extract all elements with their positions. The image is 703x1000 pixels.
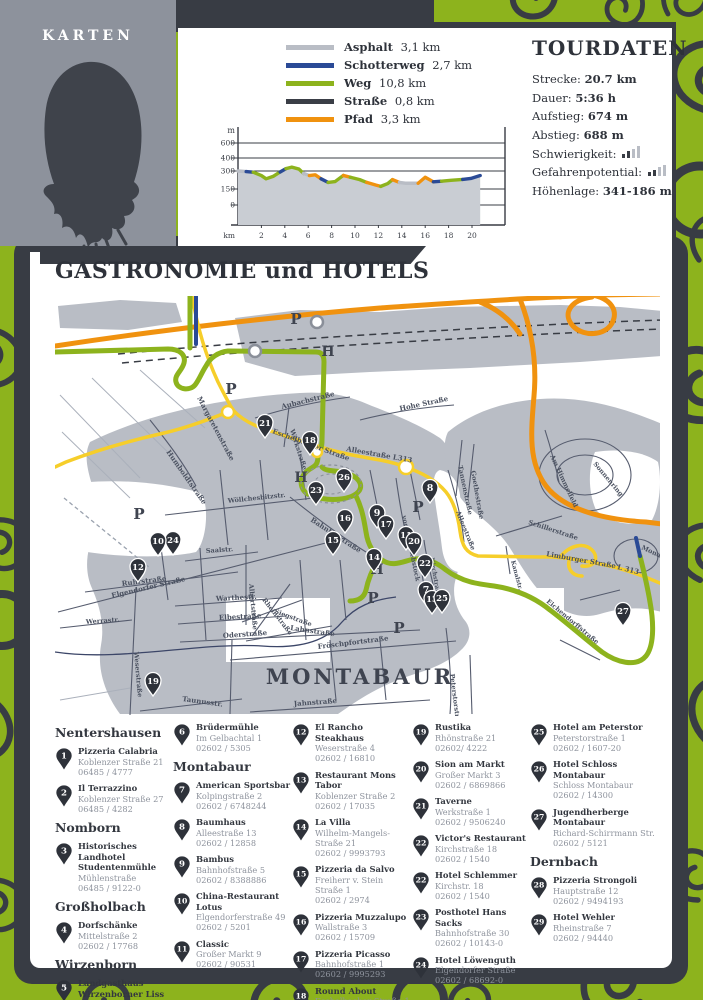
entry-detail: Richard-Schirrmann Str. [553,828,666,838]
entry-pin-icon: 9 [173,855,191,883]
directory-entry: 8BaumhausAlleestraße 1302602 / 12858 [173,817,291,848]
svg-text:15: 15 [296,870,307,879]
svg-text:22: 22 [416,839,427,848]
entry-detail: 02602 / 10143-0 [435,938,529,948]
page: KARTEN Asphalt 3,1 kmSchotterweg 2,7 kmW… [0,0,703,1000]
entry-name: Il Terrazzino [78,783,172,794]
parking-icon: P [367,589,378,607]
svg-text:18: 18 [304,436,316,446]
svg-text:400: 400 [221,154,236,163]
svg-text:21: 21 [259,419,271,429]
svg-text:29: 29 [534,918,545,927]
entry-detail: 02602 / 5201 [196,922,291,932]
svg-text:23: 23 [416,913,427,922]
entry-name: Pizzeria Strongoli [553,875,666,886]
parking-icon: P [290,310,301,328]
svg-text:m: m [227,126,235,135]
directory-section-header: Wirzenborn [55,957,172,972]
parking-icon: P [225,380,236,398]
entry-detail: 02602 / 9506240 [435,817,529,827]
entry-detail: Rhönstraße 21 [435,733,529,743]
entry-name: Hotel Schlemmer [435,870,529,881]
entry-pin-icon: 25 [530,723,548,751]
entry-pin-icon: 29 [530,913,548,941]
svg-text:23: 23 [310,486,322,496]
entry-detail: 02602 / 1540 [435,891,529,901]
tourdaten-row: Strecke: 20.7 km [532,70,670,89]
entry-name: Landgasthaus Wirzenborner Liss [78,978,172,999]
directory-entry: 7American SportsbarKolpingstraße 202602 … [173,780,291,811]
entry-name: Sion am Markt [435,759,529,770]
entry-detail: 06485 / 4777 [78,767,172,777]
entry-detail: Hauptstraße 12 [553,886,666,896]
svg-text:26: 26 [534,765,545,774]
entry-detail: Im Gelbachtal 1 [196,733,291,743]
svg-text:4: 4 [61,926,67,936]
elevation-profile-chart: 0150300400600m2468101214161820km [195,113,515,247]
directory-section-header: Nentershausen [55,725,172,740]
svg-text:300: 300 [221,167,236,176]
svg-text:14: 14 [397,231,407,240]
svg-text:12: 12 [296,728,307,737]
entry-detail: 02602/ 4222 [435,743,529,753]
entry-detail: 02602 / 5305 [196,743,291,753]
entry-name: Bambus [196,854,291,865]
directory-entry: 22Hotel SchlemmerKirchstr. 1802602 / 154… [412,870,529,901]
svg-text:20: 20 [467,231,477,240]
directory-section-header: Montabaur [173,759,291,774]
directory-entry: 16Pizzeria MuzzalupoWallstraße 302602 / … [292,912,411,943]
directory-entry: 25Hotel am PeterstorPeterstorstraße 1026… [530,722,666,753]
directory-entry: 24Hotel LöwenguthElgendorfer Straße02602… [412,955,529,986]
entry-detail: 02602 / 90531 [196,959,291,969]
directory-entry: 15Pizzeria da SalvoFreiherr v. Stein Str… [292,864,411,905]
entry-detail: 02602 / 14300 [553,790,666,800]
directory-column: 12El Rancho SteakhausWeserstraße 402602 … [292,722,411,1000]
legend-swatch [286,99,334,104]
directory-entry: 11ClassicGroßer Markt 902602 / 90531 [173,939,291,970]
entry-name: La Villa [315,817,411,828]
svg-text:19: 19 [147,677,159,687]
directory-entry: 20Sion am MarktGroßer Markt 302602 / 686… [412,759,529,790]
directory-column: Nentershausen1Pizzeria CalabriaKoblenzer… [55,722,172,1000]
directory-entry: 17Pizzeria PicassoBahnhofstraße 102602 /… [292,949,411,980]
entry-pin-icon: 2 [55,784,73,812]
entry-pin-icon: 27 [530,808,548,836]
svg-text:1: 1 [61,752,67,762]
city-map: MargaretenstraßeAubachstraßeWerkstraßeHo… [55,296,660,716]
entry-detail: 02602 / 2974 [315,895,411,905]
entry-name: Historisches Landhotel Studentenmühle [78,841,172,873]
svg-text:21: 21 [416,802,427,811]
svg-text:150: 150 [221,185,236,194]
svg-text:16: 16 [296,917,307,926]
entry-pin-icon: 26 [530,760,548,788]
city-label: MONTABAUR [266,664,454,689]
directory-section-header: Nomborn [55,820,172,835]
entry-detail: Schloss Montabaur [553,780,666,790]
entry-detail: 02602 / 15709 [315,932,411,942]
directory-entry: 14La VillaWilhelm-Mangels-Straße 2102602… [292,817,411,858]
entry-detail: 02602 / 16810 [315,753,411,763]
svg-text:13: 13 [296,775,307,784]
svg-text:19: 19 [416,728,427,737]
section-title: GASTRONOMIE und HOTELS [55,258,429,284]
directory-entry: 4DorfschänkeMittelstraße 202602 / 17768 [55,920,172,951]
svg-text:12: 12 [132,563,144,573]
svg-text:11: 11 [177,944,188,953]
entry-pin-icon: 16 [292,913,310,941]
entry-detail: Mittelstraße 2 [78,931,172,941]
svg-text:15: 15 [327,536,339,546]
svg-text:4: 4 [282,231,287,240]
entry-pin-icon: 6 [173,723,191,751]
entry-pin-icon: 10 [173,892,191,920]
directory-entry: 22Victor's RestaurantKirchstraße 1802602… [412,833,529,864]
svg-text:600: 600 [221,139,236,148]
parking-icon: P [393,619,404,637]
directory-column: 6BrüdermühleIm Gelbachtal 102602 / 5305M… [173,722,291,1000]
svg-text:20: 20 [408,537,420,547]
parking-icon: P [412,498,423,516]
svg-text:8: 8 [427,483,434,494]
entry-detail: Koblenzer Straße 2 [315,791,411,801]
directory-entry: 21TaverneWerkstraße 102602 / 9506240 [412,796,529,827]
entry-detail: Eschelbacher Straße 1 [315,996,411,1000]
entry-detail: Peterstorstraße 1 [553,733,666,743]
svg-text:7: 7 [179,786,185,796]
legend-swatch [286,81,334,86]
svg-text:3: 3 [61,847,67,857]
entry-detail: Weserstraße 4 [315,743,411,753]
karten-title: KARTEN [0,28,176,44]
directory-entry: 19RustikaRhönstraße 2102602/ 4222 [412,722,529,753]
svg-text:20: 20 [416,765,427,774]
entry-pin-icon: 20 [412,760,430,788]
directory-entry: 27Jugendherberge MontabaurRichard-Schirr… [530,807,666,849]
directory-column: 19RustikaRhönstraße 2102602/ 422220Sion … [412,722,529,1000]
svg-text:22: 22 [419,559,431,569]
entry-detail: 02602 / 9993793 [315,848,411,858]
difficulty-bars-icon [622,145,642,164]
entry-detail: Elgendorfer Straße [435,965,529,975]
entry-pin-icon: 19 [412,723,430,751]
entry-detail: 02602 / 6748244 [196,801,291,811]
entry-detail: 02602 / 9494193 [553,896,666,906]
difficulty-bars-icon [648,163,668,182]
svg-text:0: 0 [230,201,235,210]
svg-text:12: 12 [374,231,384,240]
directory-entry: 6BrüdermühleIm Gelbachtal 102602 / 5305 [173,722,291,753]
tourdaten-panel: TOURDATEN Strecke: 20.7 kmDauer: 5:36 hA… [532,36,670,200]
entry-detail: Wallstraße 3 [315,922,411,932]
entry-pin-icon: 17 [292,950,310,978]
directory-entry: 2Il TerrazzinoKoblenzer Straße 2706485 /… [55,783,172,814]
entry-detail: Wilhelm-Mangels-Straße 21 [315,828,411,849]
entry-detail: Kirchstraße 18 [435,844,529,854]
entry-pin-icon: 23 [412,908,430,936]
svg-text:17: 17 [296,954,307,963]
entry-detail: Mühlenstraße [78,873,172,883]
svg-text:25: 25 [436,594,448,604]
entry-name: China-Restaurant Lotus [196,891,291,912]
entry-name: Pizzeria Calabria [78,746,172,757]
legend-swatch [286,45,334,50]
directory-entry: 29Hotel WehlerRheinstraße 702602 / 94440 [530,912,666,943]
hotel-icon: H [321,344,334,360]
entry-name: Hotel Wehler [553,912,666,923]
entry-pin-icon: 21 [412,797,430,825]
entry-name: Round About [315,986,411,997]
svg-text:18: 18 [444,231,454,240]
entry-name: Taverne [435,796,529,807]
entry-pin-icon: 4 [55,921,73,949]
entry-detail: 06485 / 9122-0 [78,883,172,893]
hotel-icon: H [294,470,307,486]
tourdaten-row: Höhenlage: 341-186 m [532,182,670,201]
svg-text:km: km [223,231,235,240]
entry-pin-icon: 15 [292,865,310,893]
entry-pin-icon: 18 [292,987,310,1000]
entry-detail: 02602 / 5121 [553,838,666,848]
directory-section-header: Dernbach [530,854,666,869]
entry-name: Pizzeria Picasso [315,949,411,960]
svg-text:2: 2 [259,231,264,240]
legend-swatch [286,63,334,68]
entry-detail: Elgendorferstraße 49 [196,912,291,922]
entry-pin-icon: 24 [412,956,430,984]
entry-name: Restaurant Mons Tabor [315,770,411,791]
svg-text:26: 26 [338,473,350,483]
entry-name: Victor's Restaurant [435,833,529,844]
entry-name: Jugendherberge Montabaur [553,807,666,828]
directory-entry: 10China-Restaurant LotusElgendorferstraß… [173,891,291,933]
svg-text:10: 10 [152,537,164,547]
entry-detail: Koblenzer Straße 27 [78,794,172,804]
entry-detail: Kolpingstraße 2 [196,791,291,801]
svg-text:27: 27 [534,812,545,821]
entry-pin-icon: 5 [55,979,73,1000]
entry-name: Dorfschänke [78,920,172,931]
directory-entry: 12El Rancho SteakhausWeserstraße 402602 … [292,722,411,764]
legend-item: Asphalt 3,1 km [286,38,516,56]
directory: Nentershausen1Pizzeria CalabriaKoblenzer… [55,722,667,1000]
entry-name: Rustika [435,722,529,733]
svg-text:14: 14 [296,823,307,832]
entry-detail: Bahnhofstraße 1 [315,959,411,969]
directory-section-header: Großholbach [55,899,172,914]
directory-entry: 23Posthotel Hans SacksBahnhofstraße 3002… [412,907,529,949]
svg-text:18: 18 [296,991,307,1000]
svg-text:2: 2 [61,789,67,799]
svg-text:28: 28 [534,881,545,890]
svg-text:27: 27 [617,607,629,617]
parking-icon: P [133,505,144,523]
svg-text:9: 9 [179,860,185,870]
entry-detail: Freiherr v. Stein Straße 1 [315,875,411,896]
svg-text:10: 10 [177,897,188,906]
entry-pin-icon: 12 [292,723,310,751]
entry-detail: 02602 / 6869866 [435,780,529,790]
entry-detail: 02602 / 17035 [315,801,411,811]
entry-name: Brüdermühle [196,722,291,733]
entry-pin-icon: 1 [55,747,73,775]
directory-column: 25Hotel am PeterstorPeterstorstraße 1026… [530,722,666,1000]
svg-text:24: 24 [416,960,427,969]
entry-pin-icon: 22 [412,834,430,862]
entry-detail: Kirchstr. 18 [435,881,529,891]
entry-detail: Bahnhofstraße 30 [435,928,529,938]
tourdaten-row: Abstieg: 688 m [532,126,670,145]
entry-name: El Rancho Steakhaus [315,722,411,743]
svg-text:8: 8 [329,231,334,240]
entry-name: Baumhaus [196,817,291,828]
entry-name: Hotel Löwenguth [435,955,529,966]
entry-pin-icon: 3 [55,842,73,870]
directory-entry: 5Landgasthaus Wirzenborner LissKapellens… [55,978,172,1000]
svg-text:16: 16 [420,231,430,240]
svg-text:16: 16 [339,514,351,524]
svg-text:17: 17 [380,520,392,530]
entry-detail: Werkstraße 1 [435,807,529,817]
directory-entry: 9BambusBahnhofstraße 502602 / 8388886 [173,854,291,885]
entry-detail: Alleestraße 13 [196,828,291,838]
svg-text:9: 9 [374,508,381,519]
entry-name: Hotel Schloss Montabaur [553,759,666,780]
entry-name: American Sportsbar [196,780,291,791]
entry-pin-icon: 7 [173,781,191,809]
entry-pin-icon: 28 [530,876,548,904]
svg-text:6: 6 [306,231,311,240]
entry-detail: Großer Markt 9 [196,949,291,959]
entry-name: Posthotel Hans Sacks [435,907,529,928]
entry-name: Hotel am Peterstor [553,722,666,733]
legend-item: Straße 0,8 km [286,92,516,110]
directory-entry: 26Hotel Schloss MontabaurSchloss Montaba… [530,759,666,801]
svg-text:10: 10 [350,231,360,240]
entry-name: Pizzeria da Salvo [315,864,411,875]
entry-detail: 06485 / 4282 [78,804,172,814]
entry-name: Classic [196,939,291,950]
svg-text:14: 14 [368,553,380,563]
entry-pin-icon: 11 [173,940,191,968]
svg-text:5: 5 [61,984,67,994]
svg-text:22: 22 [416,876,427,885]
entry-detail: 02602 / 1607-20 [553,743,666,753]
svg-text:25: 25 [534,728,545,737]
tourdaten-row: Aufstieg: 674 m [532,107,670,126]
directory-entry: 13Restaurant Mons TaborKoblenzer Straße … [292,770,411,812]
legend-item: Schotterweg 2,7 km [286,56,516,74]
svg-text:24: 24 [167,536,179,546]
entry-pin-icon: 22 [412,871,430,899]
tourdaten-row: Dauer: 5:36 h [532,89,670,108]
entry-detail: Koblenzer Straße 21 [78,757,172,767]
directory-entry: 3Historisches Landhotel StudentenmühleMü… [55,841,172,893]
svg-text:6: 6 [179,728,185,738]
entry-detail: 02602 / 8388886 [196,875,291,885]
entry-pin-icon: 8 [173,818,191,846]
karten-box: KARTEN [0,0,176,246]
tourdaten-row: Gefahrenpotential: [532,163,670,182]
entry-detail: Bahnhofstraße 5 [196,865,291,875]
tourdaten-row: Schwierigkeit: [532,145,670,164]
tourdaten-rows: Strecke: 20.7 kmDauer: 5:36 hAufstieg: 6… [532,70,670,200]
entry-detail: 02602 / 1540 [435,854,529,864]
entry-pin-icon: 13 [292,771,310,799]
svg-text:8: 8 [179,823,185,833]
entry-detail: 02602 / 12858 [196,838,291,848]
entry-detail: 02602 / 94440 [553,933,666,943]
directory-entry: 1Pizzeria CalabriaKoblenzer Straße 21064… [55,746,172,777]
entry-detail: Großer Markt 3 [435,770,529,780]
legend-item: Weg 10,8 km [286,74,516,92]
entry-detail: Rheinstraße 7 [553,923,666,933]
tourdaten-title: TOURDATEN [532,36,670,60]
entry-name: Pizzeria Muzzalupo [315,912,411,923]
entry-detail: 02602 / 9995293 [315,969,411,979]
entry-pin-icon: 14 [292,818,310,846]
directory-entry: 18Round AboutEschelbacher Straße 102602 … [292,986,411,1000]
directory-entry: 28Pizzeria StrongoliHauptstraße 1202602 … [530,875,666,906]
entry-detail: 02602 / 17768 [78,941,172,951]
entry-detail: 02602 / 68692-0 [435,975,529,985]
